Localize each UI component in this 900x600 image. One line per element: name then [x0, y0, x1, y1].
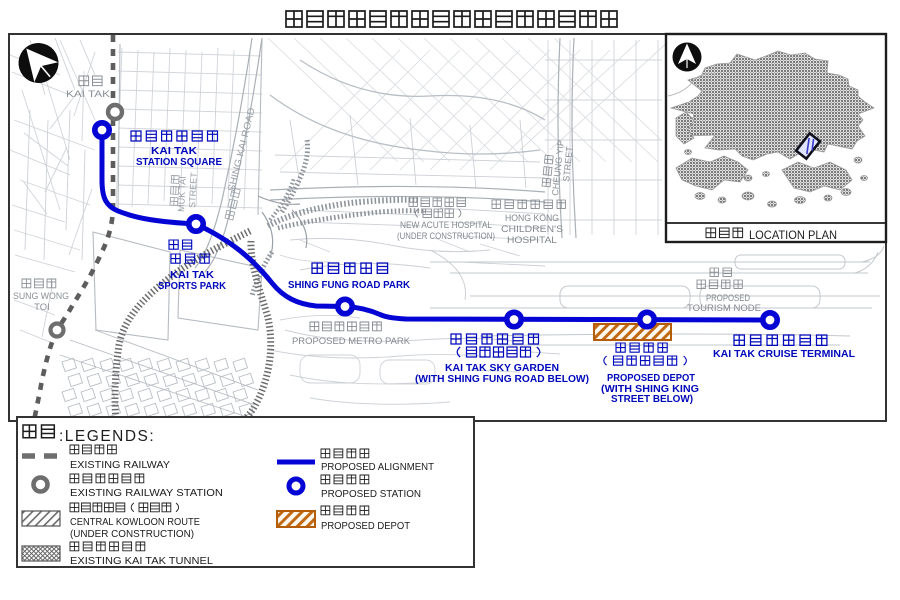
svg-text:KAI TAK: KAI TAK: [170, 270, 215, 281]
svg-text:(WITH SHING FUNG ROAD BELOW): (WITH SHING FUNG ROAD BELOW): [415, 374, 589, 385]
svg-text:(UNDER CONSTRUCTION): (UNDER CONSTRUCTION): [397, 231, 495, 242]
svg-text:STREET: STREET: [187, 172, 199, 208]
svg-text:PROPOSED ALIGNMENT: PROPOSED ALIGNMENT: [321, 462, 434, 473]
svg-text:STREET BELOW): STREET BELOW): [611, 394, 693, 405]
svg-text:PROPOSED STATION: PROPOSED STATION: [321, 489, 421, 500]
svg-text:EXISTING KAI TAK TUNNEL: EXISTING KAI TAK TUNNEL: [70, 556, 213, 567]
svg-text:KAI TAK CRUISE TERMINAL: KAI TAK CRUISE TERMINAL: [713, 349, 855, 360]
svg-text:(UNDER CONSTRUCTION): (UNDER CONSTRUCTION): [70, 529, 194, 540]
svg-text:HONG KONG: HONG KONG: [505, 213, 559, 224]
svg-text:STATION SQUARE: STATION SQUARE: [136, 157, 222, 168]
svg-text:EXISTING RAILWAY: EXISTING RAILWAY: [70, 460, 170, 471]
svg-text:CHILDREN'S: CHILDREN'S: [501, 224, 563, 235]
svg-text:KAI TAK: KAI TAK: [66, 89, 111, 100]
svg-text:LOCATION PLAN: LOCATION PLAN: [749, 230, 837, 242]
svg-text:KAI TAK: KAI TAK: [151, 146, 198, 157]
svg-text:KAI TAK SKY GARDEN: KAI TAK SKY GARDEN: [445, 363, 559, 374]
svg-text:TOURISM NODE: TOURISM NODE: [687, 303, 761, 314]
svg-text:CENTRAL KOWLOON ROUTE: CENTRAL KOWLOON ROUTE: [70, 517, 200, 528]
svg-text:EXISTING RAILWAY STATION: EXISTING RAILWAY STATION: [70, 488, 223, 499]
svg-text:PROPOSED METRO PARK: PROPOSED METRO PARK: [292, 336, 411, 347]
svg-text:SPORTS PARK: SPORTS PARK: [158, 281, 227, 292]
svg-text:PROPOSED DEPOT: PROPOSED DEPOT: [321, 521, 410, 532]
svg-text:TOI: TOI: [34, 302, 50, 313]
svg-text:SHING FUNG ROAD PARK: SHING FUNG ROAD PARK: [288, 280, 411, 291]
svg-text:SUNG WONG: SUNG WONG: [13, 291, 69, 302]
svg-text:PROPOSED DEPOT: PROPOSED DEPOT: [607, 373, 695, 384]
svg-text:HOSPITAL: HOSPITAL: [507, 235, 557, 246]
svg-text:NEW ACUTE HOSPITAL: NEW ACUTE HOSPITAL: [400, 220, 492, 231]
svg-text::LEGENDS:: :LEGENDS:: [59, 428, 155, 445]
